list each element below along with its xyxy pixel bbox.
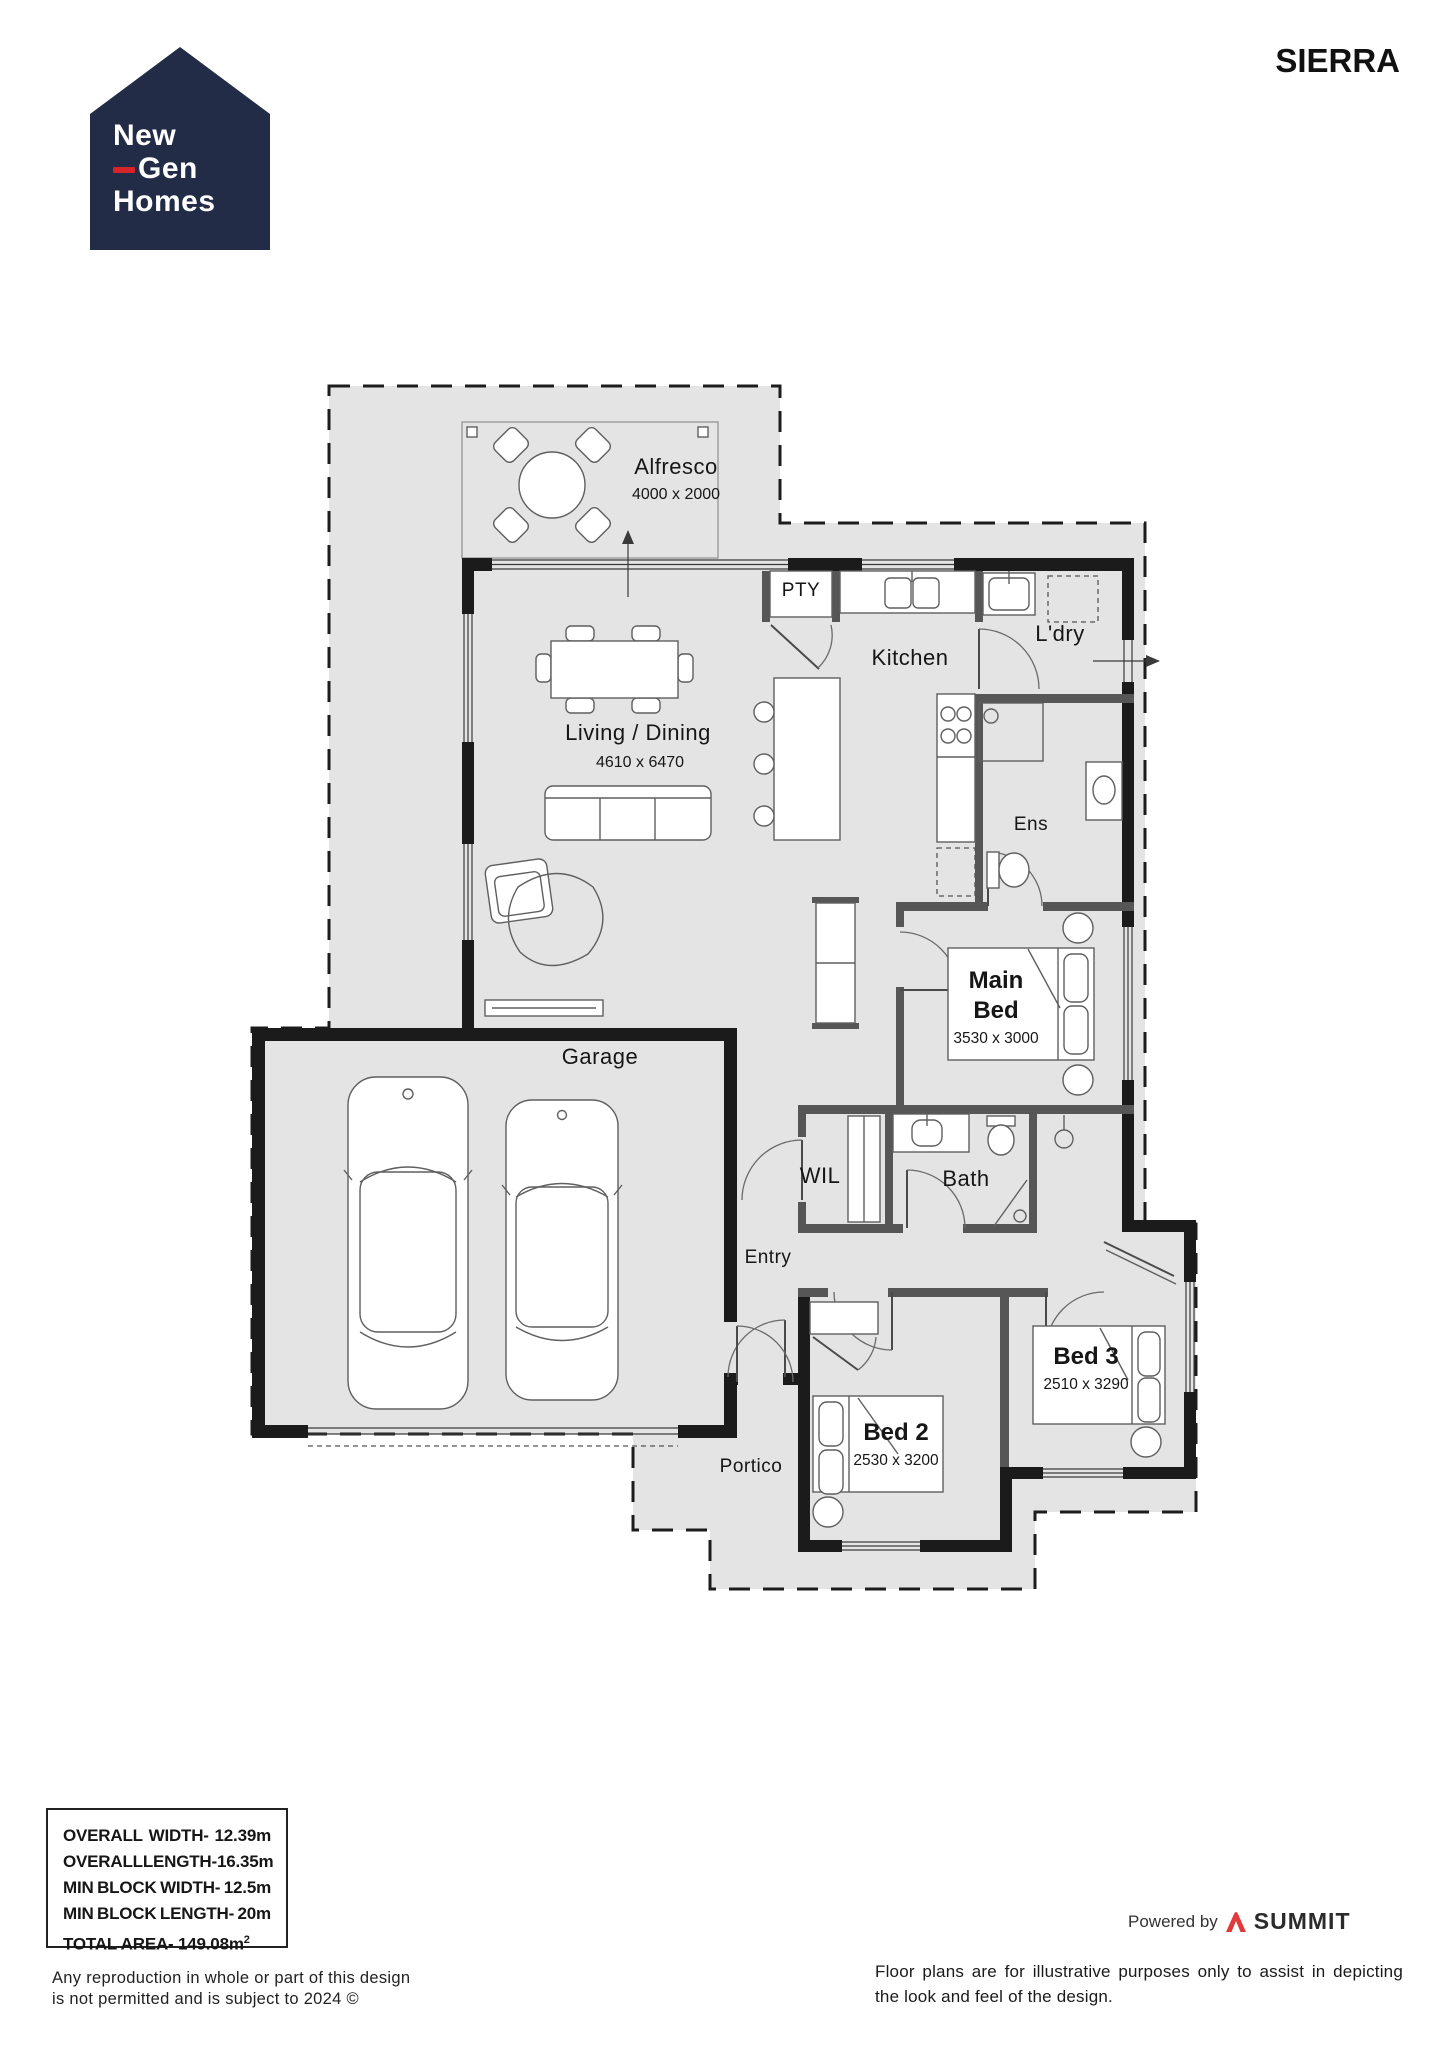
kitchen-side-bench	[937, 694, 975, 842]
spec-overall-length: OVERALLLENGTH-16.35m	[63, 1849, 271, 1875]
stool	[754, 806, 774, 826]
hall-cupboard	[816, 903, 855, 1023]
exit-arrow-icon	[1146, 655, 1160, 667]
tv-unit	[485, 1000, 603, 1016]
spec-total-area: TOTAL AREA- 149.08m2	[63, 1927, 271, 1958]
pillow	[819, 1450, 843, 1494]
summit-wordmark: SUMMIT	[1254, 1908, 1351, 1935]
copyright-line2: is not permitted and is subject to 2024 …	[52, 1989, 652, 2010]
spec-min-block-length: MINBLOCKLENGTH-20m	[63, 1901, 271, 1927]
stool	[754, 702, 774, 722]
ens-toilet-cistern	[987, 852, 999, 888]
armchair	[484, 858, 553, 924]
spec-min-block-width: MINBLOCKWIDTH-12.5m	[63, 1875, 271, 1901]
sink-bowl	[913, 578, 939, 608]
newgen-homes-logo: New Gen Homes	[90, 47, 270, 250]
powered-by-text: Powered by	[1128, 1912, 1218, 1932]
powered-by-summit: Powered by SUMMIT	[1128, 1908, 1351, 1935]
stool	[754, 754, 774, 774]
logo-word-new: New	[113, 119, 216, 152]
summit-logo-icon	[1224, 1911, 1248, 1933]
logo-dash-icon	[113, 167, 135, 173]
sofa	[545, 786, 711, 840]
logo-word-homes: Homes	[113, 185, 216, 218]
ens-toilet	[999, 853, 1029, 887]
label-bed2: Bed 2	[863, 1419, 928, 1446]
ens-vanity	[1086, 762, 1122, 820]
pillow	[1138, 1332, 1160, 1376]
copyright-note: Any reproduction in whole or part of thi…	[52, 1968, 652, 2010]
pillow	[819, 1402, 843, 1446]
bedside-table	[1131, 1427, 1161, 1457]
label-entry: Entry	[745, 1247, 792, 1268]
car	[502, 1100, 622, 1400]
label-alfresco: Alfresco	[634, 454, 717, 479]
label-pty: PTY	[782, 580, 820, 601]
logo-word-gen: Gen	[138, 152, 198, 185]
spec-overall-width: OVERALLWIDTH-12.39m	[63, 1823, 271, 1849]
label-ens: Ens	[1014, 814, 1048, 835]
label-living: Living / Dining	[565, 720, 711, 745]
label-ldry: L'dry	[1035, 621, 1085, 646]
label-bed3: Bed 3	[1053, 1343, 1118, 1370]
dim-bed2: 2530 x 3200	[853, 1452, 939, 1469]
pillow	[1064, 1006, 1088, 1054]
island-bench	[774, 678, 840, 840]
dim-living: 4610 x 6470	[596, 754, 684, 771]
sink-bowl	[885, 578, 911, 608]
label-portico: Portico	[720, 1456, 783, 1477]
label-garage: Garage	[562, 1044, 638, 1069]
dim-bed3: 2510 x 3290	[1043, 1376, 1129, 1393]
bedside-table	[813, 1497, 843, 1527]
dim-main-bed: 3530 x 3000	[953, 1030, 1039, 1047]
bed2-robe	[810, 1302, 878, 1334]
floor-plan-drawing: Alfresco 4000 x 2000 PTY Kitchen L'dry L…	[248, 382, 1198, 1622]
disclaimer-text: Floor plans are for illustrative purpose…	[875, 1960, 1403, 2009]
label-kitchen: Kitchen	[872, 645, 949, 670]
label-main-bed2: Bed	[973, 997, 1018, 1024]
car	[344, 1077, 472, 1409]
bedside-table	[1063, 913, 1093, 943]
label-main-bed: Main	[969, 967, 1024, 994]
label-wil: WIL	[800, 1163, 841, 1188]
copyright-line1: Any reproduction in whole or part of thi…	[52, 1968, 652, 1989]
logo-text: New Gen Homes	[113, 119, 216, 218]
label-bath: Bath	[942, 1166, 989, 1191]
dim-alfresco: 4000 x 2000	[632, 486, 720, 503]
bath-toilet	[988, 1125, 1014, 1155]
bedside-table	[1063, 1065, 1093, 1095]
pillow	[1064, 954, 1088, 1002]
logo-line-gen: Gen	[113, 152, 216, 185]
pillow	[1138, 1378, 1160, 1422]
floor-plan-page: New Gen Homes SIERRA	[0, 0, 1448, 2048]
design-name: SIERRA	[1275, 42, 1400, 80]
specs-box: OVERALLWIDTH-12.39m OVERALLLENGTH-16.35m…	[46, 1808, 288, 1948]
